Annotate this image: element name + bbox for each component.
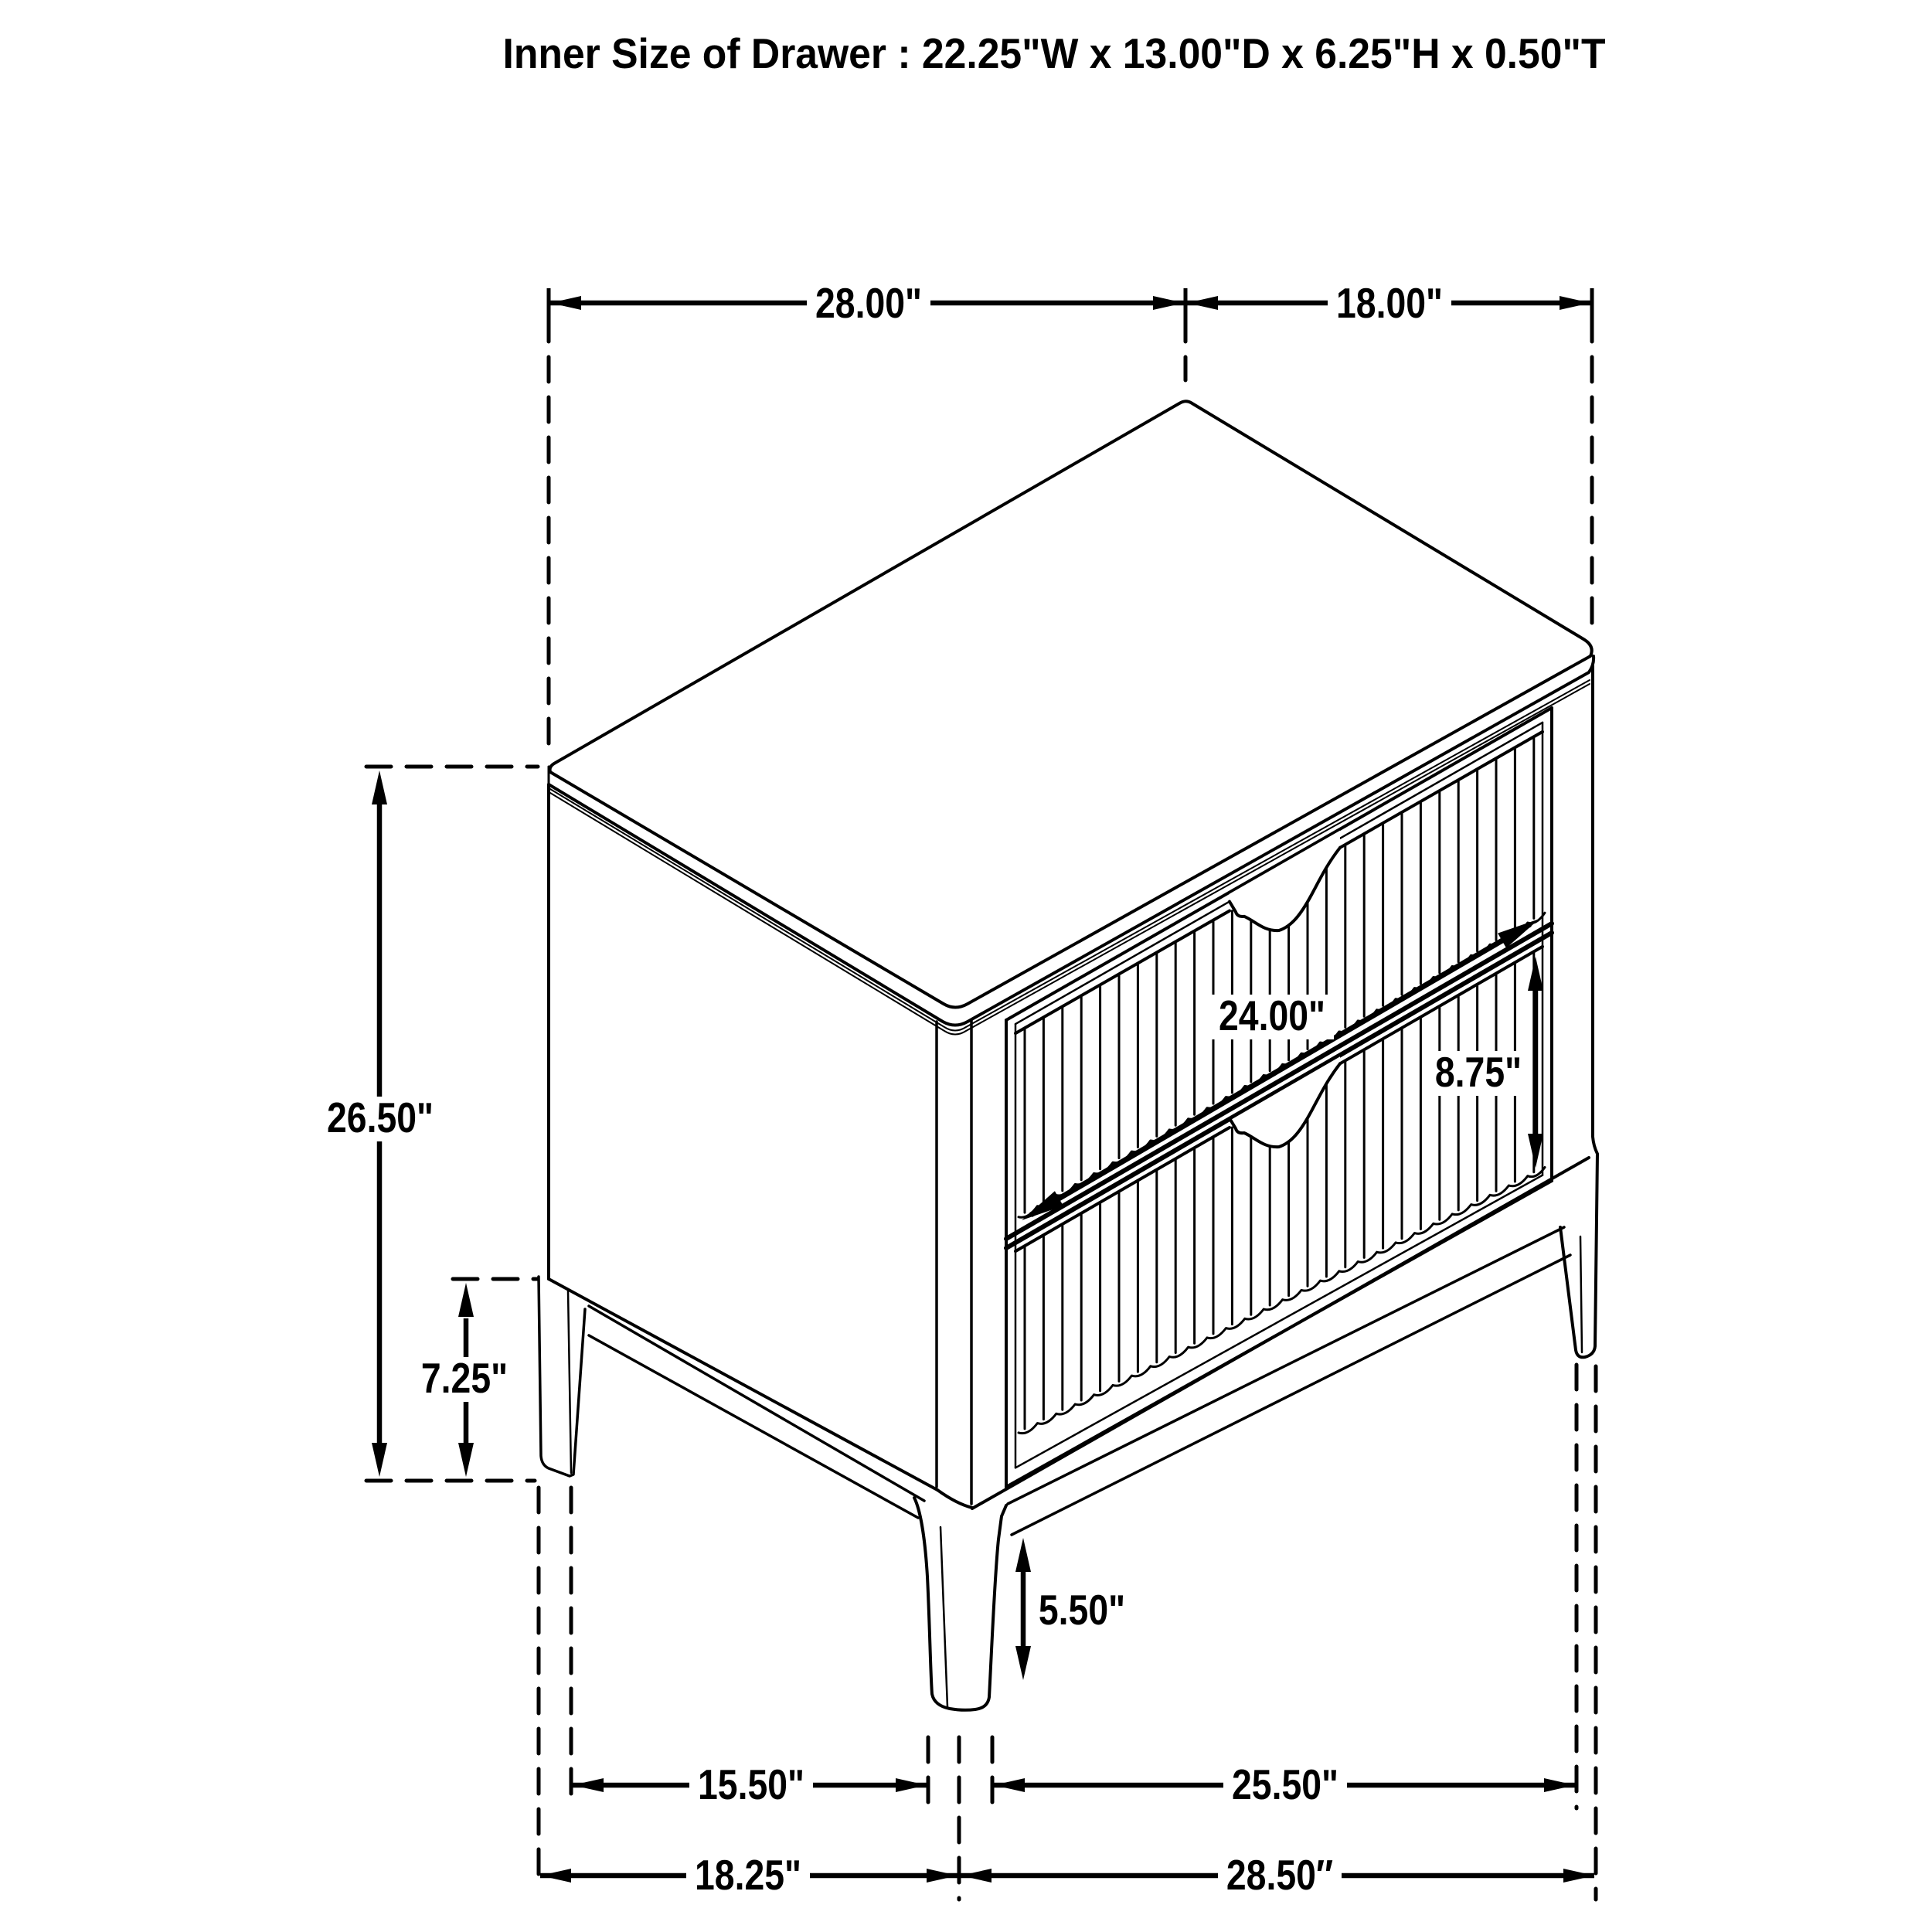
svg-text:28.00": 28.00" (815, 279, 922, 327)
svg-text:8.75": 8.75" (1435, 1048, 1522, 1096)
svg-text:7.25": 7.25" (421, 1354, 508, 1402)
svg-text:28.50″: 28.50″ (1226, 1851, 1333, 1899)
svg-text:18.00": 18.00" (1336, 279, 1443, 327)
svg-text:5.50": 5.50" (1039, 1586, 1125, 1634)
svg-text:18.25": 18.25" (695, 1851, 801, 1899)
svg-text:25.50": 25.50" (1232, 1760, 1338, 1808)
svg-text:Inner Size of Drawer : 22.25"W: Inner Size of Drawer : 22.25"W x 13.00"D… (503, 29, 1606, 77)
svg-text:15.50": 15.50" (698, 1760, 804, 1808)
svg-text:24.00": 24.00" (1219, 992, 1325, 1039)
svg-text:26.50": 26.50" (327, 1094, 434, 1141)
